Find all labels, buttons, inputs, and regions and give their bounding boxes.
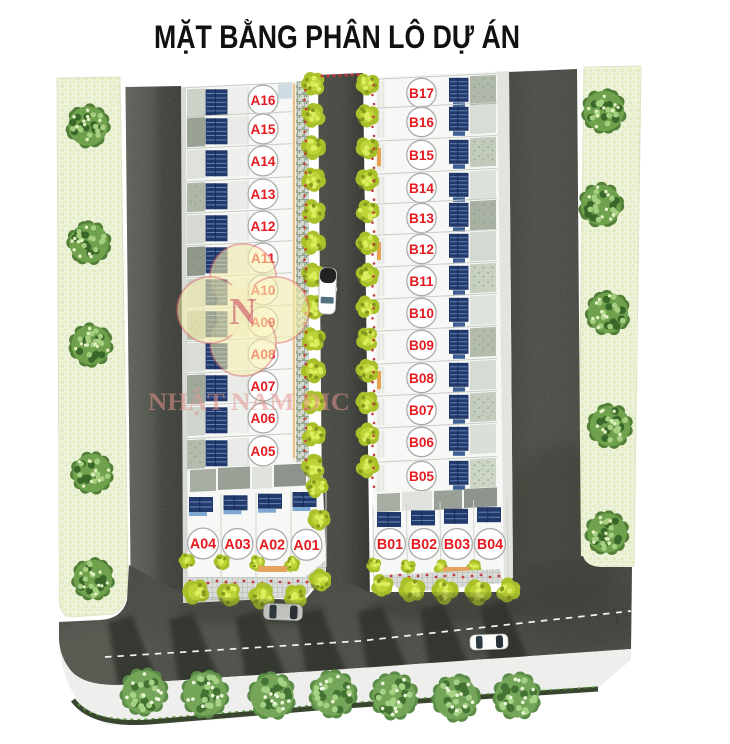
svg-text:B07: B07 <box>409 403 434 418</box>
svg-text:A13: A13 <box>251 187 276 202</box>
svg-text:B06: B06 <box>409 435 434 450</box>
svg-text:B17: B17 <box>409 86 434 101</box>
svg-text:A05: A05 <box>251 444 276 459</box>
svg-text:B16: B16 <box>409 115 434 130</box>
svg-text:B08: B08 <box>409 371 434 386</box>
svg-text:B14: B14 <box>409 181 434 196</box>
svg-text:MẶT BẰNG PHÂN LÔ DỰ ÁN: MẶT BẰNG PHÂN LÔ DỰ ÁN <box>154 19 520 55</box>
svg-text:A14: A14 <box>251 154 276 169</box>
svg-text:A04: A04 <box>190 537 216 553</box>
svg-text:B05: B05 <box>409 469 434 484</box>
svg-text:NHẬT NAM ĐIC: NHẬT NAM ĐIC <box>148 388 350 416</box>
svg-text:A15: A15 <box>251 122 276 137</box>
svg-text:B03: B03 <box>444 537 470 553</box>
svg-text:A16: A16 <box>251 93 276 108</box>
svg-text:B12: B12 <box>409 242 434 257</box>
svg-text:A01: A01 <box>293 538 319 554</box>
svg-text:A12: A12 <box>251 219 276 234</box>
svg-text:B11: B11 <box>409 274 434 289</box>
svg-text:B09: B09 <box>409 338 434 353</box>
svg-text:B02: B02 <box>411 537 437 553</box>
svg-text:B15: B15 <box>409 148 434 163</box>
svg-text:B01: B01 <box>377 537 403 553</box>
svg-text:A02: A02 <box>259 538 285 554</box>
svg-text:A03: A03 <box>224 537 250 553</box>
svg-text:B13: B13 <box>409 211 434 226</box>
svg-text:B10: B10 <box>409 306 434 321</box>
svg-text:B04: B04 <box>477 537 503 553</box>
svg-text:N: N <box>229 291 256 333</box>
